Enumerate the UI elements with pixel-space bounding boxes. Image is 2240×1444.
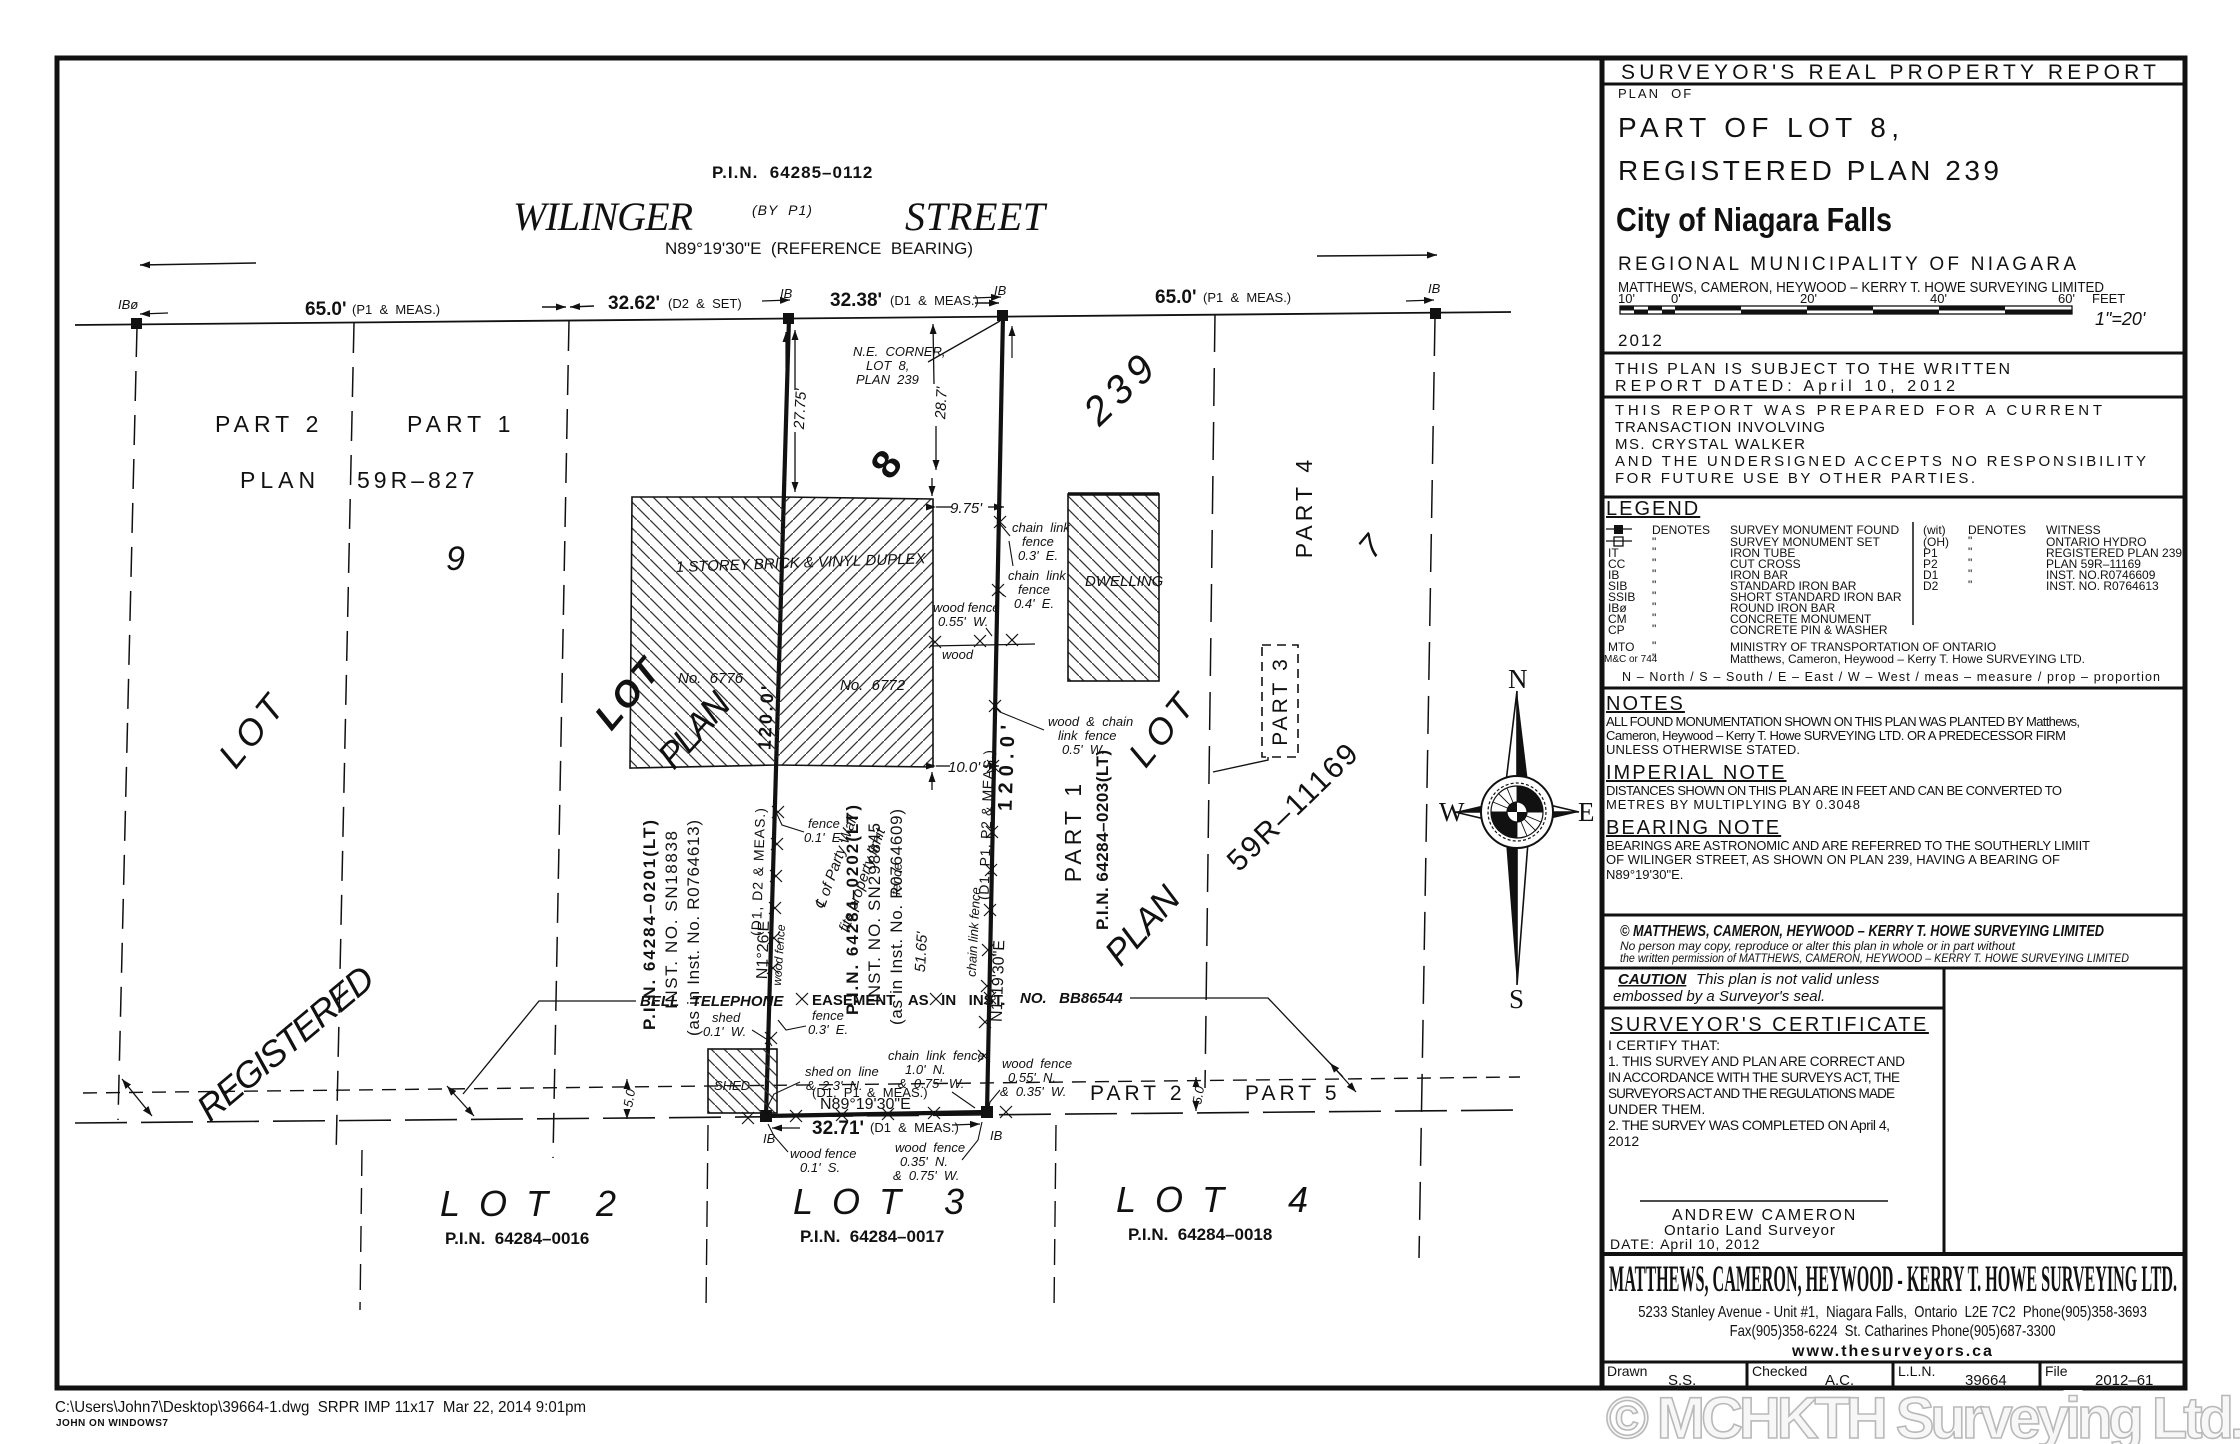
svg-text:DENOTES: DENOTES <box>1652 523 1710 537</box>
svg-text:40': 40' <box>1930 291 1947 306</box>
svg-text:0.1' E.: 0.1' E. <box>804 830 844 845</box>
svg-text:chain link: chain link <box>1008 568 1067 583</box>
svg-text:PART 2: PART 2 <box>1090 1082 1186 1105</box>
svg-text:10.0': 10.0' <box>948 759 981 776</box>
svg-text:No. 6776: No. 6776 <box>678 670 744 687</box>
svg-text:DENOTES: DENOTES <box>1968 523 2026 537</box>
svg-text:THIS REPORT WAS PREPARED FOR A: THIS REPORT WAS PREPARED FOR A CURRENT <box>1615 402 2102 419</box>
svg-text:65.0': 65.0' <box>1155 287 1197 308</box>
svg-text:E: E <box>1578 797 1595 827</box>
svg-text:PART 4: PART 4 <box>1291 456 1317 558</box>
svg-text:IB: IB <box>763 1131 776 1146</box>
svg-text:IB: IB <box>990 1128 1003 1143</box>
svg-text:JOHN ON WINDOWS7: JOHN ON WINDOWS7 <box>56 1418 168 1429</box>
svg-text:IBø: IBø <box>118 297 138 312</box>
svg-text:CAUTION: CAUTION <box>1618 971 1687 988</box>
svg-text:N89°19'30"E.: N89°19'30"E. <box>1606 867 1683 882</box>
svg-text:0.55' W.: 0.55' W. <box>938 614 988 629</box>
svg-text:CONCRETE PIN & WASHER: CONCRETE PIN & WASHER <box>1730 623 1888 637</box>
svg-text:embossed by a Surveyor's seal.: embossed by a Surveyor's seal. <box>1613 988 1825 1005</box>
svg-text:32.38': 32.38' <box>830 290 882 311</box>
svg-text:Matthews, Cameron, Heywood – K: Matthews, Cameron, Heywood – Kerry T. Ho… <box>1730 652 2085 666</box>
svg-text:wood fence: wood fence <box>933 600 1000 615</box>
svg-text:SURVEYOR'S REAL PROPERTY REPOR: SURVEYOR'S REAL PROPERTY REPORT <box>1621 61 2156 84</box>
svg-text:Fax(905)358-6224 St. Catharin: Fax(905)358-6224 St. Catharines Phone(90… <box>1730 1323 2056 1340</box>
svg-text:65.0': 65.0' <box>305 299 347 320</box>
svg-text:1"=20': 1"=20' <box>2095 309 2146 329</box>
svg-text:(P1 & MEAS.): (P1 & MEAS.) <box>1203 290 1291 305</box>
svg-text:This plan is not valid unless: This plan is not valid unless <box>1696 971 1880 988</box>
svg-text:No. 6772: No. 6772 <box>840 677 906 694</box>
svg-text:3: 3 <box>944 1181 964 1222</box>
svg-text:EASEMENT AS IN INST.: EASEMENT AS IN INST. <box>812 992 1005 1009</box>
svg-text:59R–827: 59R–827 <box>357 467 478 493</box>
svg-text:Checked: Checked <box>1752 1363 1807 1379</box>
svg-text:SHED: SHED <box>714 1078 750 1093</box>
svg-text:9: 9 <box>446 540 465 578</box>
svg-text:1. THIS SURVEY AND PLAN ARE CO: 1. THIS SURVEY AND PLAN ARE CORRECT AND <box>1608 1054 1905 1069</box>
svg-text:wood: wood <box>942 647 974 662</box>
svg-text:PLAN OF: PLAN OF <box>1618 86 1693 101</box>
svg-text:File: File <box>2045 1363 2068 1379</box>
svg-text:N: N <box>1508 664 1528 694</box>
svg-text:WILINGER: WILINGER <box>513 194 693 239</box>
svg-text:DATE: April 10, 2012: DATE: April 10, 2012 <box>1610 1236 1760 1252</box>
svg-text:BEARINGS ARE ASTRONOMIC AND AR: BEARINGS ARE ASTRONOMIC AND ARE REFERRED… <box>1606 838 2090 853</box>
svg-text:fence: fence <box>1018 582 1050 597</box>
svg-text:the written permission of MATT: the written permission of MATTHEWS, CAME… <box>1620 951 2129 965</box>
svg-text:INST. NO. SN298845: INST. NO. SN298845 <box>865 823 884 1003</box>
svg-text:9.75': 9.75' <box>950 500 983 517</box>
svg-text:S: S <box>1509 984 1524 1014</box>
svg-text:PART 1: PART 1 <box>1060 780 1086 882</box>
svg-text:SURVEYORS ACT AND THE REGULATI: SURVEYORS ACT AND THE REGULATIONS MADE <box>1608 1086 1895 1101</box>
svg-text:I CERTIFY THAT:: I CERTIFY THAT: <box>1608 1037 1720 1053</box>
svg-text:PART 5: PART 5 <box>1245 1082 1341 1105</box>
svg-text:4: 4 <box>1288 1179 1308 1220</box>
svg-text:shed: shed <box>712 1010 741 1025</box>
svg-text:INST. NO. SN18838: INST. NO. SN18838 <box>662 831 681 1009</box>
svg-text:P.I.N. 64284–0017: P.I.N. 64284–0017 <box>800 1227 944 1246</box>
svg-text:REGIONAL MUNICIPALITY OF NIAGA: REGIONAL MUNICIPALITY OF NIAGARA <box>1618 254 2076 275</box>
svg-text:IN ACCORDANCE WITH THE SURVEYS: IN ACCORDANCE WITH THE SURVEYS ACT, THE <box>1608 1070 1900 1085</box>
svg-text:(D1 & MEAS.): (D1 & MEAS.) <box>870 1120 959 1135</box>
svg-text:wood & chain: wood & chain <box>1048 714 1133 729</box>
svg-text:2: 2 <box>595 1183 616 1224</box>
svg-text:L.L.N.: L.L.N. <box>1898 1363 1935 1379</box>
svg-text:ALL FOUND MONUMENTATION SHOWN: ALL FOUND MONUMENTATION SHOWN ON THIS PL… <box>1606 714 2080 729</box>
svg-text:IB: IB <box>994 283 1007 298</box>
svg-text:0.5' W.: 0.5' W. <box>1062 742 1105 757</box>
svg-text:PLAN: PLAN <box>240 467 320 493</box>
svg-text:P.I.N. 64284–0016: P.I.N. 64284–0016 <box>445 1229 589 1248</box>
svg-text:chain link fence: chain link fence <box>888 1048 985 1063</box>
svg-text:W: W <box>1439 797 1465 827</box>
svg-text:P.I.N. 64284–0203(LT): P.I.N. 64284–0203(LT) <box>1093 750 1112 930</box>
svg-text:LOT: LOT <box>793 1181 904 1222</box>
svg-text:MATTHEWS, CAMERON, HEYWOOD - K: MATTHEWS, CAMERON, HEYWOOD - KERRY T. HO… <box>1609 1259 2177 1300</box>
svg-text:0.1' W.: 0.1' W. <box>703 1024 746 1039</box>
svg-text:": " <box>1652 622 1656 636</box>
svg-text:2012: 2012 <box>1618 331 1664 350</box>
svg-text:(D2 & SET): (D2 & SET) <box>668 296 742 311</box>
svg-text:0.55' N.: 0.55' N. <box>1008 1070 1056 1085</box>
svg-text:shed on line: shed on line <box>805 1064 879 1079</box>
svg-text:UNLESS OTHERWISE STATED.: UNLESS OTHERWISE STATED. <box>1606 742 1800 757</box>
svg-text:fence: fence <box>812 1008 844 1023</box>
svg-text:0.35' N.: 0.35' N. <box>900 1154 948 1169</box>
svg-text:fence: fence <box>1022 534 1054 549</box>
svg-text:C:\Users\John7\Desktop\39664-1: C:\Users\John7\Desktop\39664-1.dwg SRPR … <box>55 1399 586 1416</box>
svg-text:1.0' N.: 1.0' N. <box>905 1062 946 1077</box>
svg-text:MATTHEWS, CAMERON, HEYWOOD – K: MATTHEWS, CAMERON, HEYWOOD – KERRY T. HO… <box>1618 279 2104 296</box>
svg-text:D2: D2 <box>1923 579 1939 593</box>
svg-text:FEET: FEET <box>2092 291 2125 306</box>
svg-text:27.75': 27.75' <box>791 387 810 430</box>
svg-text:UNDER THEM.: UNDER THEM. <box>1608 1101 1705 1117</box>
svg-text:N.E. CORNER,: N.E. CORNER, <box>853 344 945 359</box>
svg-text:(BY P1): (BY P1) <box>752 202 813 218</box>
svg-text:0.1' S.: 0.1' S. <box>800 1160 840 1175</box>
svg-text:OF WILINGER STREET, AS SHOWN O: OF WILINGER STREET, AS SHOWN ON PLAN 239… <box>1606 852 2060 867</box>
svg-text:N1°19'30"E: N1°19'30"E <box>989 940 1009 1022</box>
svg-text:NOTES: NOTES <box>1606 693 1685 715</box>
svg-text:wood fence: wood fence <box>790 1146 857 1161</box>
svg-text:BEARING NOTE: BEARING NOTE <box>1606 817 1781 839</box>
svg-text:MTO: MTO <box>1608 640 1634 654</box>
svg-text:Drawn: Drawn <box>1607 1363 1647 1379</box>
svg-text:0': 0' <box>1671 291 1681 306</box>
svg-text:& 0.75' W.: & 0.75' W. <box>898 1076 964 1091</box>
svg-text:IMPERIAL NOTE: IMPERIAL NOTE <box>1606 762 1786 784</box>
svg-text:wood fence: wood fence <box>895 1140 965 1155</box>
svg-text:N89°19'30"E (REFERENCE BEARI: N89°19'30"E (REFERENCE BEARING) <box>665 239 973 258</box>
svg-text:© MATTHEWS, CAMERON, HEYWOOD: © MATTHEWS, CAMERON, HEYWOOD – KERRY T. … <box>1620 923 2104 940</box>
svg-text:LOT: LOT <box>440 1183 551 1224</box>
svg-text:& 0.35' W.: & 0.35' W. <box>1000 1084 1066 1099</box>
svg-text:IB: IB <box>780 286 793 301</box>
svg-text:www.thesurveyors.ca: www.thesurveyors.ca <box>1791 1343 1994 1360</box>
svg-text:BELL TELEPHONE: BELL TELEPHONE <box>640 993 784 1010</box>
svg-text:": " <box>1652 651 1656 665</box>
svg-text:0.4' E.: 0.4' E. <box>1014 596 1054 611</box>
svg-text:M&C or 744: M&C or 744 <box>1604 654 1658 665</box>
svg-text:NO. BB86544: NO. BB86544 <box>1020 990 1123 1007</box>
svg-text:PART 1: PART 1 <box>407 411 515 437</box>
svg-text:2. THE SURVEY WAS COMPLETED ON: 2. THE SURVEY WAS COMPLETED ON April 4, <box>1608 1117 1890 1133</box>
svg-text:LOT: LOT <box>1116 1179 1227 1220</box>
svg-text:DISTANCES SHOWN ON THIS PLAN A: DISTANCES SHOWN ON THIS PLAN ARE IN FEET… <box>1606 783 2062 798</box>
svg-text:5233 Stanley Avenue - Unit #1,: 5233 Stanley Avenue - Unit #1, Niagara F… <box>1638 1304 2147 1321</box>
svg-text:City of Niagara Falls: City of Niagara Falls <box>1616 201 1892 238</box>
svg-text:0.3' E.: 0.3' E. <box>1018 548 1058 563</box>
svg-text:(D1 & MEAS.): (D1 & MEAS.) <box>890 293 979 308</box>
svg-text:CP: CP <box>1608 623 1625 637</box>
svg-text:60': 60' <box>2058 291 2075 306</box>
svg-text:wood fence: wood fence <box>1002 1056 1072 1071</box>
svg-text:AND THE UNDERSIGNED ACCEPTS NO: AND THE UNDERSIGNED ACCEPTS NO RESPONSIB… <box>1615 453 2146 470</box>
svg-text:(P1 & MEAS.): (P1 & MEAS.) <box>352 302 440 317</box>
svg-text:MS. CRYSTAL WALKER: MS. CRYSTAL WALKER <box>1615 436 1805 453</box>
svg-text:METRES BY MULTIPLYING BY 0.304: METRES BY MULTIPLYING BY 0.3048 <box>1606 797 1860 812</box>
svg-text:10': 10' <box>1618 291 1635 306</box>
svg-text:0.3' E.: 0.3' E. <box>808 1022 848 1037</box>
svg-text:IB: IB <box>1428 281 1441 296</box>
svg-text:20': 20' <box>1800 291 1817 306</box>
svg-text:P.I.N. 64285–0112: P.I.N. 64285–0112 <box>712 163 873 182</box>
svg-text:chain link: chain link <box>1012 520 1071 535</box>
svg-text:TRANSACTION INVOLVING: TRANSACTION INVOLVING <box>1615 419 1825 436</box>
svg-text:120.0': 120.0' <box>754 686 777 751</box>
svg-text:PLAN 239: PLAN 239 <box>856 372 919 387</box>
svg-text:": " <box>1968 578 1972 592</box>
svg-text:link fence: link fence <box>1058 728 1117 743</box>
svg-text:LOT 8,: LOT 8, <box>866 358 909 373</box>
svg-text:PART 2: PART 2 <box>215 411 323 437</box>
svg-text:SURVEYOR'S CERTIFICATE: SURVEYOR'S CERTIFICATE <box>1610 1014 1929 1036</box>
svg-text:Cameron, Heywood – Kerry T. Ho: Cameron, Heywood – Kerry T. Howe SURVEYI… <box>1606 728 2066 743</box>
svg-text:N – North / S – South / E: N – North / S – South / E – East / W – W… <box>1622 670 2160 684</box>
svg-text:32.62': 32.62' <box>608 293 660 314</box>
svg-text:32.71': 32.71' <box>812 1118 864 1139</box>
svg-text:51.65': 51.65' <box>912 930 931 972</box>
svg-text:FOR FUTURE USE BY OTHER PARTIE: FOR FUTURE USE BY OTHER PARTIES. <box>1615 470 1975 487</box>
svg-text:INST. NO. R0764613: INST. NO. R0764613 <box>2046 579 2159 593</box>
svg-text:fence: fence <box>888 863 905 896</box>
svg-text:2012: 2012 <box>1608 1133 1639 1149</box>
svg-text:PART 3: PART 3 <box>1269 656 1292 746</box>
svg-text:© MCHKTH Surveying Ltd.: © MCHKTH Surveying Ltd. <box>1606 1386 2240 1444</box>
svg-text:fence: fence <box>808 816 840 831</box>
svg-text:P.I.N. 64284–0018: P.I.N. 64284–0018 <box>1128 1225 1272 1244</box>
svg-text:28.7': 28.7' <box>932 385 951 420</box>
svg-text:DWELLING: DWELLING <box>1085 573 1164 590</box>
svg-text:P.I.N. 64284–0202(LT): P.I.N. 64284–0202(LT) <box>843 805 862 1015</box>
svg-text:N89°19'30"E: N89°19'30"E <box>820 1096 911 1113</box>
svg-text:LEGEND: LEGEND <box>1606 498 1700 520</box>
svg-text:STREET: STREET <box>905 194 1048 239</box>
